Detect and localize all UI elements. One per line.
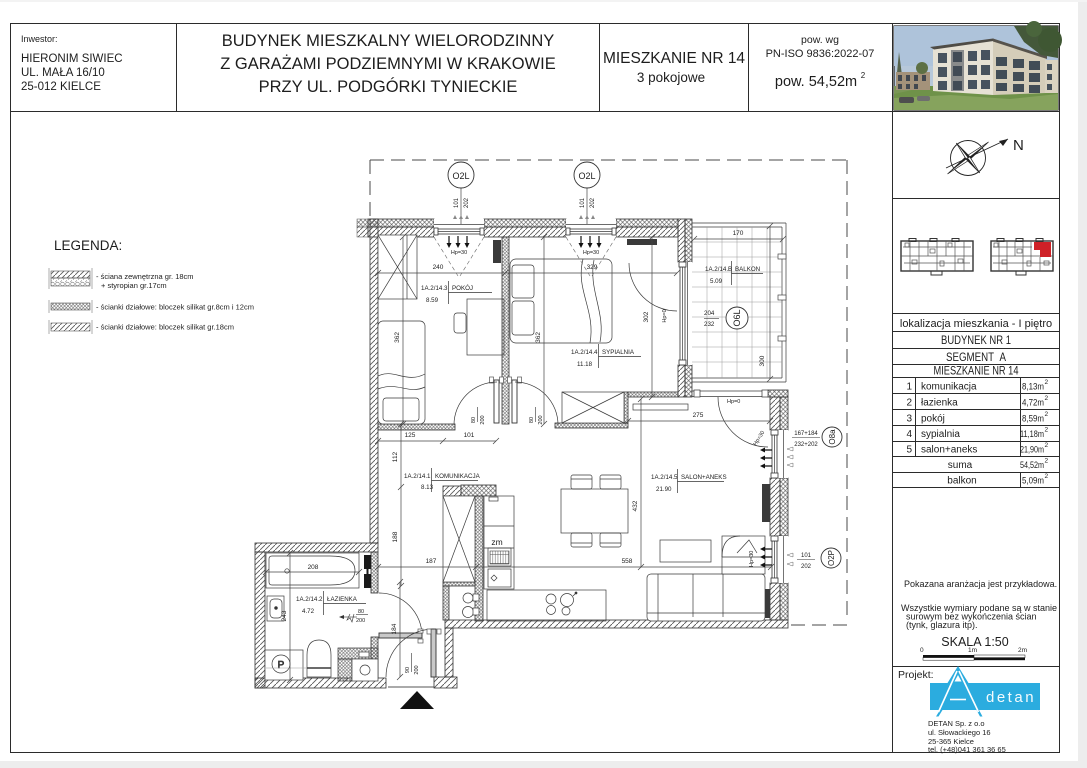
- svg-text:204: 204: [704, 310, 715, 317]
- svg-text:125: 125: [405, 432, 416, 439]
- svg-text:1A.2/14.1: 1A.2/14.1: [404, 473, 431, 480]
- svg-text:432: 432: [632, 500, 639, 511]
- svg-text:208: 208: [308, 564, 319, 571]
- svg-text:202: 202: [801, 564, 812, 570]
- svg-text:170: 170: [733, 230, 744, 237]
- svg-text:101: 101: [464, 432, 475, 439]
- svg-text:3 pokojowe: 3 pokojowe: [637, 70, 705, 85]
- svg-text:1A.2/14.B: 1A.2/14.B: [705, 266, 732, 273]
- svg-text:2: 2: [906, 398, 912, 409]
- svg-text:1A.2/14.2: 1A.2/14.2: [296, 596, 323, 603]
- svg-text:komunikacja: komunikacja: [921, 382, 977, 393]
- svg-text:Z GARAŻAMI PODZIEMNYMI W KRAKO: Z GARAŻAMI PODZIEMNYMI W KRAKOWIE: [220, 54, 556, 73]
- svg-text:101: 101: [454, 197, 460, 208]
- svg-text:200: 200: [480, 415, 486, 424]
- svg-text:suma: suma: [948, 460, 973, 471]
- svg-text:2: 2: [1045, 427, 1049, 434]
- svg-text:KOMUNIKACJA: KOMUNIKACJA: [435, 473, 481, 480]
- svg-text:184: 184: [391, 623, 398, 634]
- svg-text:362: 362: [394, 332, 401, 343]
- svg-text:BALKON: BALKON: [735, 266, 760, 273]
- svg-text:5.09: 5.09: [710, 278, 723, 285]
- svg-text:Hp=30: Hp=30: [583, 250, 599, 256]
- svg-text:5: 5: [906, 445, 912, 456]
- svg-text:200: 200: [356, 618, 365, 624]
- svg-text:1: 1: [906, 382, 912, 393]
- svg-text:POKÓJ: POKÓJ: [452, 285, 473, 292]
- svg-text:21,90m: 21,90m: [1020, 445, 1044, 455]
- svg-text:PN-ISO 9836:2022-07: PN-ISO 9836:2022-07: [766, 48, 875, 60]
- svg-text:3: 3: [906, 414, 912, 425]
- svg-text:SEGMENT A: SEGMENT A: [946, 352, 1006, 364]
- svg-text:Hp=30: Hp=30: [749, 551, 755, 567]
- svg-text:188: 188: [392, 531, 399, 542]
- svg-text:SALON+ANEKS: SALON+ANEKS: [681, 474, 727, 481]
- svg-text:Pokazana aranżacja jest przykł: Pokazana aranżacja jest przykładowa.: [904, 579, 1057, 589]
- svg-text:8.13: 8.13: [421, 484, 434, 491]
- svg-text:O8a: O8a: [828, 429, 837, 445]
- svg-text:2: 2: [1045, 473, 1049, 480]
- svg-text:O6L: O6L: [732, 309, 742, 326]
- svg-text:Hp=0: Hp=0: [662, 309, 668, 322]
- svg-text:BUDYNEK MIESZKALNY WIELORODZIN: BUDYNEK MIESZKALNY WIELORODZINNY: [222, 32, 555, 50]
- svg-text:8,13m: 8,13m: [1022, 382, 1044, 392]
- svg-text:2: 2: [1045, 411, 1049, 418]
- svg-text:275: 275: [693, 412, 704, 419]
- svg-text:Hp=0: Hp=0: [727, 399, 740, 405]
- svg-text:80: 80: [529, 417, 535, 423]
- svg-text:240: 240: [433, 264, 444, 271]
- svg-text:MIESZKANIE NR 14: MIESZKANIE NR 14: [603, 50, 745, 67]
- svg-text:101: 101: [580, 197, 586, 208]
- svg-text:pow. 54,52m: pow. 54,52m: [775, 74, 857, 90]
- svg-text:54,52m: 54,52m: [1020, 460, 1044, 470]
- svg-text:200: 200: [538, 415, 544, 424]
- svg-text:4.72: 4.72: [302, 608, 315, 615]
- svg-text:90: 90: [405, 667, 411, 673]
- svg-text:243: 243: [281, 610, 288, 621]
- svg-text:4,72m: 4,72m: [1022, 398, 1044, 408]
- svg-text:1A.2/14.5: 1A.2/14.5: [651, 474, 678, 481]
- svg-text:- ściana zewnętrzna gr. 18cm: - ściana zewnętrzna gr. 18cm: [96, 272, 194, 281]
- svg-text:O2L: O2L: [452, 171, 469, 181]
- svg-text:balkon: balkon: [947, 476, 976, 487]
- svg-text:4: 4: [906, 429, 912, 440]
- svg-text:zm: zm: [491, 537, 502, 547]
- svg-text:5,09m: 5,09m: [1022, 476, 1044, 486]
- svg-text:lokalizacja mieszkania - I pię: lokalizacja mieszkania - I piętro: [900, 318, 1052, 330]
- svg-text:Inwestor:: Inwestor:: [21, 34, 58, 44]
- svg-text:O2P: O2P: [827, 550, 836, 566]
- svg-text:łazienka: łazienka: [921, 398, 958, 409]
- svg-text:1m: 1m: [968, 647, 977, 654]
- svg-text:329: 329: [587, 264, 598, 271]
- svg-text:pow. wg: pow. wg: [801, 34, 839, 46]
- svg-text:362: 362: [535, 332, 542, 343]
- svg-text:25-012 KIELCE: 25-012 KIELCE: [21, 81, 101, 93]
- svg-text:2: 2: [1045, 442, 1049, 449]
- svg-text:HIERONIM SIWIEC: HIERONIM SIWIEC: [21, 53, 123, 65]
- svg-text:2: 2: [1045, 379, 1049, 386]
- svg-text:- ścianki działowe: bloczek si: - ścianki działowe: bloczek silikat gr.8…: [96, 303, 254, 312]
- svg-text:300: 300: [759, 355, 766, 366]
- svg-text:232+202: 232+202: [794, 442, 818, 448]
- svg-text:232: 232: [704, 321, 715, 328]
- svg-text:0: 0: [920, 647, 924, 654]
- svg-text:202: 202: [590, 197, 596, 208]
- svg-text:21.90: 21.90: [656, 486, 672, 493]
- svg-text:ul. Słowackiego 16: ul. Słowackiego 16: [928, 728, 991, 737]
- svg-text:LEGENDA:: LEGENDA:: [54, 238, 122, 253]
- svg-text:MIESZKANIE NR 14: MIESZKANIE NR 14: [934, 366, 1019, 378]
- svg-text:P: P: [278, 660, 285, 671]
- svg-text:sypialnia: sypialnia: [921, 429, 960, 440]
- svg-text:UL. MAŁA 16/10: UL. MAŁA 16/10: [21, 67, 105, 79]
- svg-text:8,59m: 8,59m: [1022, 414, 1044, 424]
- svg-text:Hp=30: Hp=30: [451, 250, 467, 256]
- svg-text:11.18: 11.18: [577, 361, 593, 368]
- svg-text:167+184: 167+184: [794, 431, 818, 437]
- svg-text:(tynk, glazura itp).: (tynk, glazura itp).: [906, 620, 978, 630]
- svg-text:1A.2/14.3: 1A.2/14.3: [421, 285, 448, 292]
- svg-text:N: N: [1013, 137, 1024, 154]
- svg-text:202: 202: [464, 197, 470, 208]
- svg-text:salon+aneks: salon+aneks: [921, 445, 977, 456]
- svg-text:detan: detan: [986, 689, 1036, 706]
- svg-text:BUDYNEK NR 1: BUDYNEK NR 1: [941, 335, 1011, 347]
- svg-text:2: 2: [1045, 458, 1049, 465]
- svg-text:ŁAZIENKA: ŁAZIENKA: [327, 596, 358, 603]
- svg-text:+ styropian gr.17cm: + styropian gr.17cm: [101, 281, 167, 290]
- svg-text:8.59: 8.59: [426, 297, 439, 304]
- svg-text:101: 101: [801, 553, 812, 559]
- svg-text:2: 2: [1045, 395, 1049, 402]
- svg-text:SYPIALNIA: SYPIALNIA: [602, 349, 635, 356]
- svg-text:O2L: O2L: [578, 171, 595, 181]
- svg-text:558: 558: [622, 558, 633, 565]
- svg-text:2: 2: [861, 71, 866, 80]
- svg-text:200: 200: [414, 665, 420, 674]
- svg-text:187: 187: [426, 558, 437, 565]
- svg-text:DETAN Sp. z o.o: DETAN Sp. z o.o: [928, 719, 985, 728]
- svg-text:2m: 2m: [1018, 647, 1027, 654]
- svg-text:PRZY UL. PODGÓRKI TYNIECKIE: PRZY UL. PODGÓRKI TYNIECKIE: [259, 77, 518, 96]
- svg-text:112: 112: [392, 451, 399, 462]
- svg-text:tel. (+48)041 361 36 65: tel. (+48)041 361 36 65: [928, 745, 1006, 754]
- svg-text:11,18m: 11,18m: [1020, 429, 1044, 439]
- svg-text:80: 80: [358, 609, 364, 615]
- svg-text:pokój: pokój: [921, 414, 945, 425]
- svg-text:Projekt:: Projekt:: [898, 669, 934, 681]
- svg-text:- ścianki działowe: bloczek si: - ścianki działowe: bloczek silikat gr.1…: [96, 323, 234, 332]
- svg-text:302: 302: [643, 311, 650, 322]
- svg-text:80: 80: [471, 417, 477, 423]
- svg-text:1A.2/14.4: 1A.2/14.4: [571, 349, 598, 356]
